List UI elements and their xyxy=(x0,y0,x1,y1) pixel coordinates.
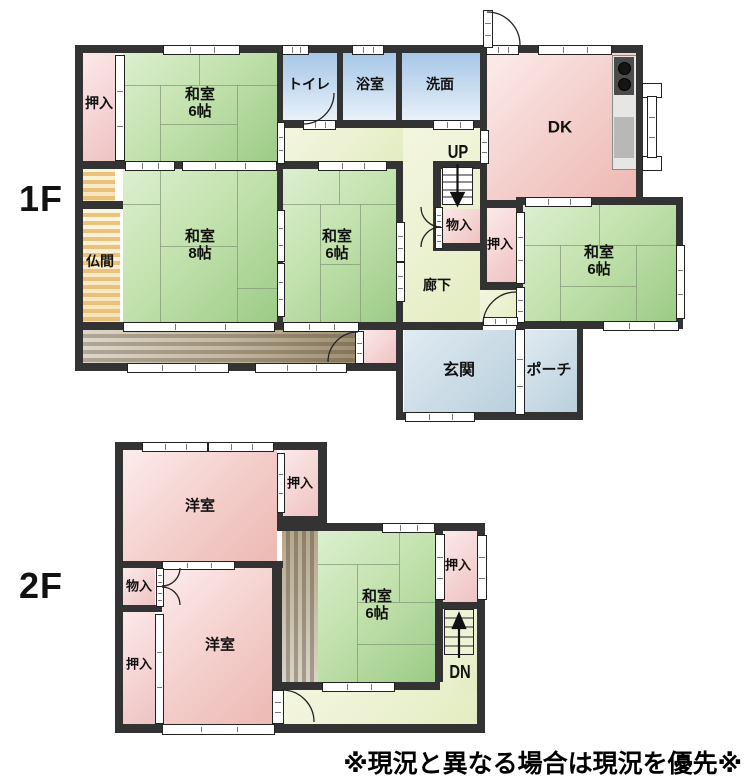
fusuma xyxy=(277,453,285,513)
stove-burner xyxy=(618,62,631,75)
fusuma xyxy=(115,55,125,161)
floor-label-2f: 2F xyxy=(19,566,63,606)
fusuma xyxy=(155,614,164,724)
room-door-leaf xyxy=(272,690,284,724)
window xyxy=(255,363,347,373)
label-monoire: 物入 xyxy=(126,580,152,595)
label-oshiire: 押入 xyxy=(445,559,471,574)
floor-label-1f: 1F xyxy=(19,179,63,219)
fusuma xyxy=(396,222,405,262)
back-door-leaf xyxy=(483,10,493,48)
label-yoshitsu: 洋室 xyxy=(205,638,235,655)
window xyxy=(603,321,679,331)
engawa-door xyxy=(283,322,359,332)
door-opening xyxy=(480,130,489,164)
window xyxy=(142,442,208,452)
stairs-1f xyxy=(442,167,473,205)
fusuma xyxy=(182,161,277,171)
entrance-slider xyxy=(515,329,525,415)
room-1f-tokonoma xyxy=(82,168,115,201)
window xyxy=(162,724,275,735)
sliding-door xyxy=(322,682,395,692)
toilet-door-leaf xyxy=(303,120,336,130)
label-bath: 浴室 xyxy=(356,77,384,93)
fusuma xyxy=(435,534,445,600)
floorplan-canvas: 1F 2F 押入 和室 6帖 トイレ 浴室 洗面 DK UP 物入 押入 和室 … xyxy=(0,0,746,783)
engawa-door-leaf xyxy=(355,331,364,364)
room-2f-stripe-hall xyxy=(282,531,318,682)
kitchen-sink xyxy=(614,117,634,158)
window xyxy=(525,197,592,207)
window xyxy=(282,45,309,55)
bay-window xyxy=(647,96,657,158)
label-porch: ポーチ xyxy=(526,363,571,380)
window xyxy=(538,45,612,55)
fusuma xyxy=(277,263,285,317)
label-butsuma: 仏間 xyxy=(86,254,114,270)
window xyxy=(352,45,384,55)
closet-door-leaf xyxy=(435,207,443,229)
door-opening xyxy=(433,120,474,130)
label-oshiire: 押入 xyxy=(126,658,152,673)
label-toilet: トイレ xyxy=(288,77,330,93)
fusuma xyxy=(125,161,175,171)
closet-door-leaf xyxy=(435,227,443,249)
engawa-door xyxy=(123,322,275,332)
label-oshiire: 押入 xyxy=(287,477,313,492)
fusuma xyxy=(277,210,285,262)
fusuma xyxy=(396,262,405,302)
label-stairs-dn: DN xyxy=(449,662,470,682)
label-washitsu: 和室 6帖 xyxy=(322,229,352,263)
label-yoshitsu: 洋室 xyxy=(185,499,215,516)
bay-window xyxy=(642,156,662,171)
label-monoire: 物入 xyxy=(446,219,472,234)
door-opening xyxy=(277,122,285,164)
room-2f-corridor xyxy=(282,690,477,724)
label-stairs-up: UP xyxy=(448,142,469,162)
label-washitsu: 和室 8帖 xyxy=(185,229,215,263)
label-oshiire: 押入 xyxy=(487,238,513,253)
sliding-door xyxy=(162,561,235,570)
stove-burner xyxy=(618,78,631,91)
fusuma xyxy=(318,161,387,171)
window xyxy=(163,45,240,55)
label-washitsu: 和室 6帖 xyxy=(362,589,392,623)
room-1f-engawa-closet xyxy=(361,330,396,363)
window xyxy=(477,535,487,600)
label-washitsu: 和室 6帖 xyxy=(584,245,614,279)
window xyxy=(676,245,685,319)
fusuma xyxy=(516,212,525,284)
label-oshiire: 押入 xyxy=(85,96,113,112)
window xyxy=(382,523,435,533)
closet-door-leaf xyxy=(156,586,164,607)
disclaimer-note: ※現況と異なる場合は現況を優先※ xyxy=(343,744,742,780)
window xyxy=(208,442,274,452)
label-washroom: 洗面 xyxy=(426,77,454,93)
entrance-door xyxy=(405,412,475,422)
room-1f-corridor-a xyxy=(283,127,403,162)
room-1f-engawa xyxy=(83,330,355,363)
label-genkan: 玄関 xyxy=(443,362,475,380)
label-corridor: 廊下 xyxy=(423,278,451,294)
label-washitsu: 和室 6帖 xyxy=(185,87,215,121)
stairs-2f xyxy=(444,609,474,655)
window xyxy=(127,363,229,373)
corridor-door-leaf xyxy=(483,317,518,326)
label-dk: DK xyxy=(548,117,573,136)
